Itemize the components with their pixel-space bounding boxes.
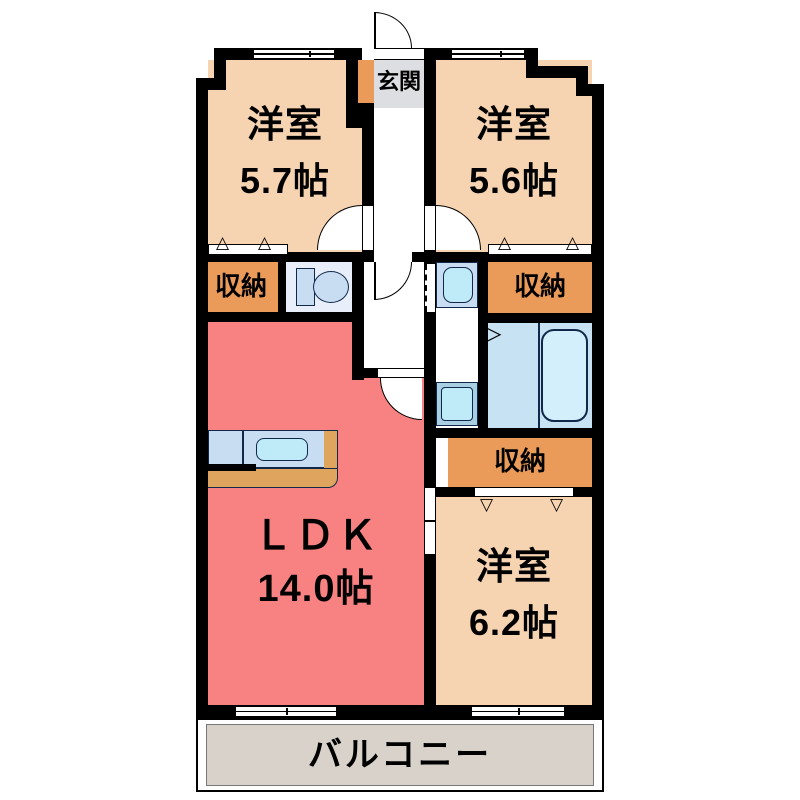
closet-1-label: 収納 [204,273,278,300]
wall-segment [564,705,604,718]
closet-door-triangle-icon: ▽ [480,496,493,513]
closet-door-triangle-icon: △ [258,234,271,251]
window-room2 [452,48,524,60]
genkan-label: 玄関 [372,70,426,93]
room-western-1-size: 5.7帖 [208,162,362,200]
kitchen-counter-edge-front [208,468,338,488]
closet-door-triangle-icon: △ [216,234,229,251]
room-western-3-size: 6.2帖 [436,604,592,642]
wall-segment [362,126,374,208]
kitchen-sink-icon [256,438,308,461]
window-ldk-balcony [236,705,336,718]
room-western-2-size: 5.6帖 [436,162,592,200]
wall-segment [196,312,364,322]
wall-segment [196,705,236,718]
room-ldk-label: ＬＤＫ [208,515,424,557]
wall-segment [412,252,424,262]
floor-plan: ▷ △ △ △ △ ▽ ▽ [0,0,800,800]
wall-segment [346,60,358,105]
toilet-bowl-icon [313,271,349,303]
washroom-sliding-door [425,264,435,312]
wall-segment [478,252,488,434]
bath-divider [538,323,540,428]
kitchen-counter-edge-side [324,430,338,472]
closet3-access-gap [436,438,448,487]
kitchen-wall-line [196,464,256,471]
balcony-label: バルコニー [206,738,594,774]
ldk-door-head [378,368,424,378]
room1-door-leaf [362,205,374,251]
bathtub-icon [541,329,588,422]
closet-door-triangle-icon: △ [566,234,579,251]
wall-segment [592,84,604,718]
entrance-door-arc [374,12,412,48]
wall-segment [574,487,604,497]
closet-door-triangle-icon: ▽ [550,496,563,513]
room-western-3 [436,495,592,705]
closet-3-label: 収納 [448,448,592,475]
wall-segment [196,78,208,718]
wall-segment [336,705,472,718]
room-western-2-label: 洋室 [436,106,592,145]
room-western-3-label: 洋室 [436,548,592,587]
wall-segment [424,428,604,438]
sliding-door-handle-tick [424,520,436,522]
room-ldk-size: 14.0帖 [208,570,424,610]
closet-2-label: 収納 [488,273,592,300]
window-room3-balcony [472,705,564,718]
wall-segment [478,313,604,323]
closet-door-triangle-icon: △ [498,234,511,251]
entrance-door-opening [374,48,424,60]
wall-segment [364,368,378,378]
washbasin-icon [443,267,473,303]
wall-segment [436,487,474,497]
wall-segment [424,553,436,705]
washing-machine-icon [441,387,473,421]
kitchen-counter-divider [242,430,244,468]
wall-segment [278,256,286,318]
room-western-1-label: 洋室 [208,106,362,145]
window-room1 [254,48,334,60]
room2-door-leaf [424,205,436,251]
